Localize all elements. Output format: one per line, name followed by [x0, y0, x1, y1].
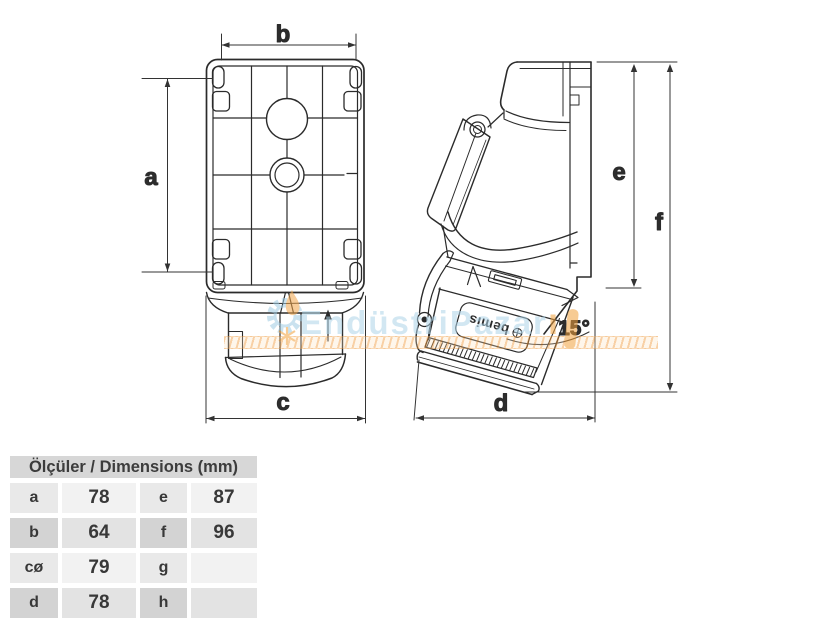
dimensions-table: Ölçüler / Dimensions (mm) a 78 e 87 b 64… [10, 456, 257, 623]
table-row: a 78 e 87 [10, 483, 257, 513]
dim-cell-label: cø [10, 553, 58, 583]
dim-label-d: d [494, 390, 509, 417]
dim-cell-label: a [10, 483, 58, 513]
gland-hole [267, 99, 308, 140]
dim-cell-label: d [10, 588, 58, 618]
screw-hole-inner [275, 163, 299, 187]
dim-cell-label: h [140, 588, 187, 618]
dimension-drawing: bemis [0, 0, 825, 450]
hinge-bracket [416, 251, 453, 353]
dim-label-e: e [612, 159, 625, 186]
angle-label: 15° [558, 317, 590, 340]
side-view: bemis [416, 62, 591, 395]
dim-cell-value: 87 [191, 483, 257, 513]
dim-label-b: b [276, 21, 291, 48]
cable-gland-spike [281, 293, 294, 314]
table-row: d 78 h [10, 588, 257, 618]
dim-cell-value: 64 [62, 518, 136, 548]
dimensions-table-title: Ölçüler / Dimensions (mm) [10, 456, 257, 478]
dim-cell-value [191, 553, 257, 583]
dim-cell-label: f [140, 518, 187, 548]
dim-label-f: f [655, 209, 664, 236]
cable-clamp [427, 115, 491, 231]
brand-label-text: bemis [467, 312, 511, 338]
brand-plate: bemis [454, 301, 535, 355]
mounting-direction-arrow [324, 310, 332, 342]
dim-cell-value [191, 588, 257, 618]
table-row: cø 79 g [10, 553, 257, 583]
dim-label-c: c [276, 389, 289, 416]
dim-cell-label: g [140, 553, 187, 583]
dim-cell-label: b [10, 518, 58, 548]
dim-cell-value: 96 [191, 518, 257, 548]
dim-label-a: a [144, 164, 158, 191]
dim-cell-value: 79 [62, 553, 136, 583]
front-view [207, 60, 365, 387]
dim-cell-value: 78 [62, 483, 136, 513]
dim-cell-value: 78 [62, 588, 136, 618]
table-row: b 64 f 96 [10, 518, 257, 548]
technical-drawing-page: bemis [0, 0, 825, 625]
dim-cell-label: e [140, 483, 187, 513]
